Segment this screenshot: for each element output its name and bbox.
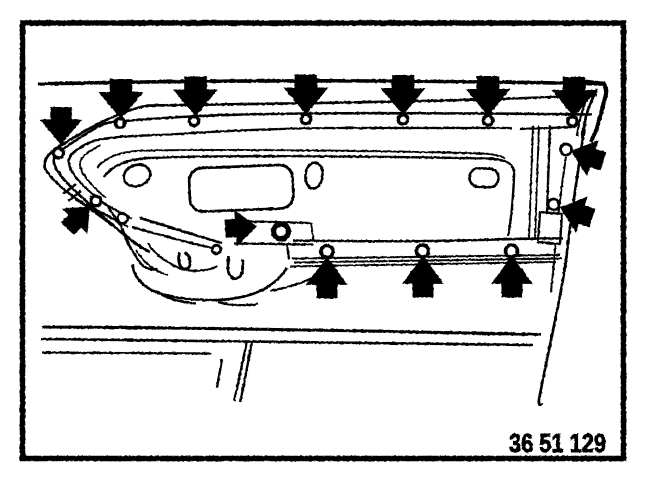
svg-text:36 51 129: 36 51 129	[509, 428, 606, 458]
